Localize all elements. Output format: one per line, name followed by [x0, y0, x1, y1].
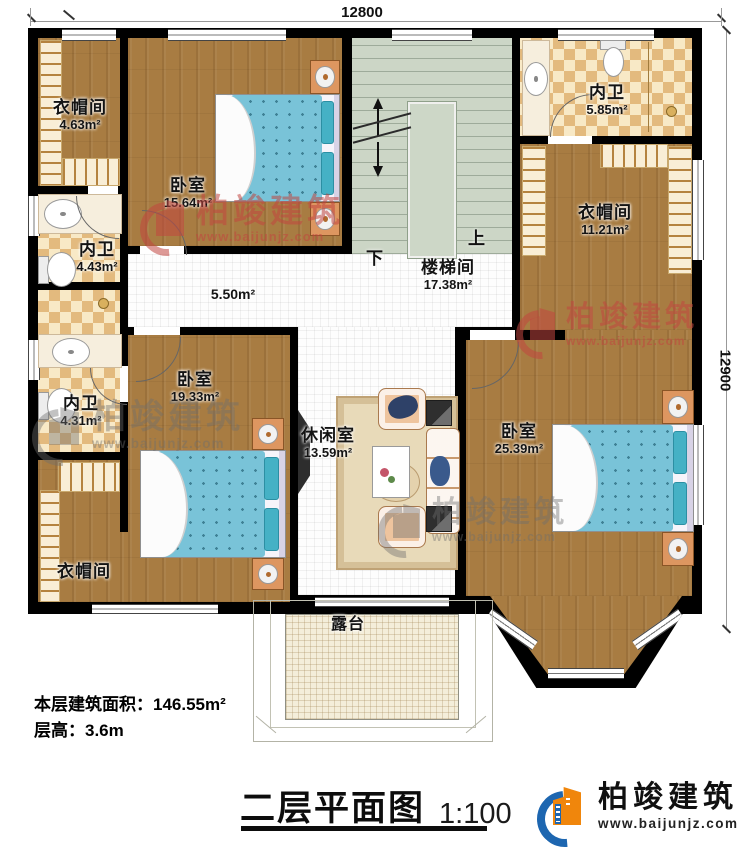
window	[692, 160, 704, 260]
wardrobe	[600, 144, 668, 168]
dimension-tick	[63, 10, 75, 21]
dimension-top-label: 12800	[330, 4, 394, 21]
floor-plan-canvas: 衣帽间4.63m² 卧室15.64m² 楼梯间17.38m² 内卫5.85m² …	[0, 0, 750, 849]
opening-cloak-bedroom	[565, 330, 692, 340]
window	[392, 29, 472, 41]
toilet	[603, 47, 624, 77]
window	[168, 29, 286, 41]
wardrobe	[668, 146, 692, 274]
label-bedroom-top-left: 卧室15.64m²	[138, 176, 238, 210]
nightstand	[252, 558, 284, 590]
nightstand	[310, 60, 340, 94]
bed	[140, 450, 286, 558]
info-floor-area: 本层建筑面积：146.55m²	[34, 690, 226, 715]
stair-landing	[408, 102, 456, 258]
label-bath-left-1: 内卫4.43m²	[55, 240, 139, 274]
bay-window	[478, 596, 694, 688]
person	[430, 456, 450, 486]
dimension-right-label: 12900	[700, 362, 720, 442]
flowers	[388, 476, 395, 483]
brand-logo: 柏竣建筑 www.baijunjz.com	[536, 782, 739, 836]
end-table	[426, 506, 452, 532]
armchair	[378, 506, 426, 548]
wardrobe	[522, 146, 546, 256]
label-terrace: 露台	[318, 616, 378, 634]
nightstand	[662, 390, 694, 424]
label-bedroom-bottom-left: 卧室19.33m²	[145, 370, 245, 404]
title-underline	[241, 826, 487, 831]
wardrobe	[58, 462, 120, 492]
label-bath-top-right: 内卫5.85m²	[557, 83, 657, 117]
window	[92, 604, 218, 614]
window	[62, 29, 116, 41]
label-cloak-bottom-left: 衣帽间	[44, 562, 124, 582]
label-leisure: 休闲室13.59m²	[278, 426, 378, 460]
label-stairs-down: 下	[366, 244, 383, 269]
label-bedroom-right: 卧室25.39m²	[469, 422, 569, 456]
door-gap	[134, 327, 180, 335]
bed	[552, 424, 694, 532]
wardrobe	[40, 490, 60, 602]
dimension-ext-line	[30, 8, 31, 26]
brand-logo-icon	[536, 782, 590, 836]
nightstand	[662, 532, 694, 566]
brand-name: 柏竣建筑	[598, 782, 739, 814]
info-floor-height: 层高：3.6m	[34, 716, 124, 741]
label-cloak-top-right: 衣帽间11.21m²	[555, 203, 655, 237]
label-cloak-top-left: 衣帽间4.63m²	[40, 98, 120, 132]
dimension-top-line	[30, 21, 722, 22]
shower-drain	[98, 298, 109, 309]
label-stairs-up: 上	[468, 224, 485, 249]
label-bath-left-2: 内卫4.31m²	[41, 394, 121, 428]
flowers	[380, 468, 389, 477]
label-corridor-area: 5.50m²	[203, 286, 263, 302]
sink	[52, 338, 90, 366]
dimension-right-line	[726, 30, 727, 630]
stair-arrow-stem	[377, 142, 379, 168]
dimension-ext-line	[721, 8, 722, 26]
brand-url: www.baijunjz.com	[598, 816, 739, 831]
stair-arrow-down	[373, 166, 383, 177]
nightstand	[310, 202, 340, 236]
door-gap	[548, 136, 592, 144]
wardrobe	[62, 158, 120, 186]
door-gap	[88, 186, 118, 194]
page-title: 二层平面图	[240, 780, 425, 831]
window	[548, 668, 624, 679]
shower-head	[666, 106, 677, 117]
label-stairwell: 楼梯间17.38m²	[398, 258, 498, 292]
sink	[524, 62, 548, 96]
title-block: 二层平面图 1:100	[240, 780, 512, 831]
door-gap	[470, 330, 515, 340]
end-table	[426, 400, 452, 426]
